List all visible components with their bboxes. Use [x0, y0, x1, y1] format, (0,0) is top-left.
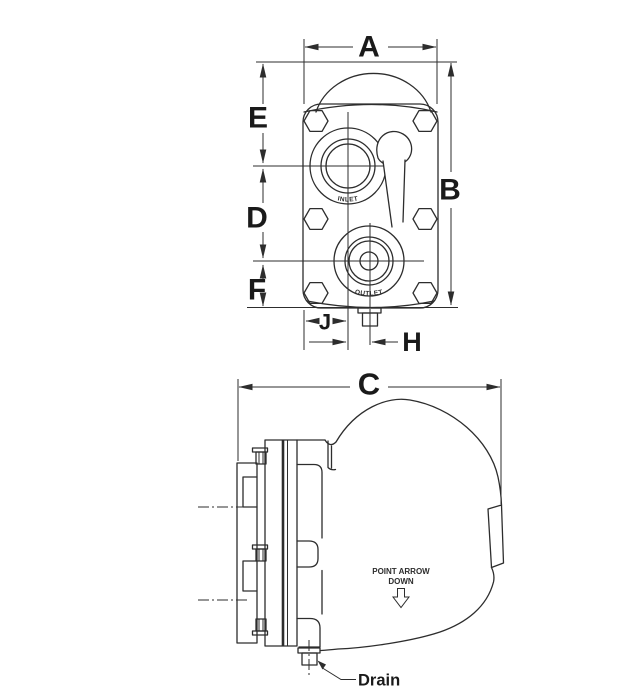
flange-step-lower [243, 561, 257, 591]
hollow-down-arrow-icon [393, 589, 409, 608]
body-dome-profile [325, 399, 502, 505]
outlet-label: OUTLET [354, 289, 384, 298]
dim-j-label: J [319, 310, 331, 335]
dome-cap [316, 73, 431, 112]
inlet-label: INLET [337, 195, 359, 203]
hex-bolt [413, 283, 437, 304]
dim-b-label: B [439, 174, 461, 207]
body-top-crown [304, 105, 437, 113]
point-arrow-note-line1: POINT ARROW [372, 567, 430, 576]
drain-leader-line [323, 668, 357, 680]
point-arrow-note-line2: DOWN [388, 577, 414, 586]
linkage-arm-fill [383, 161, 405, 227]
side-view: C [198, 367, 504, 690]
technical-drawing: A B E D F J H INLET OUTLET [0, 0, 640, 697]
dim-a-label: A [358, 31, 380, 64]
dim-e-label: E [248, 102, 268, 135]
drain-arrowhead [318, 661, 327, 670]
dim-c-label: C [358, 367, 380, 402]
neck-lug-middle [297, 541, 318, 567]
hex-bolt [413, 209, 437, 230]
pipe-flange-side [237, 463, 257, 643]
linkage-boss [377, 131, 412, 165]
hex-bolt [413, 111, 437, 132]
flange-step-upper [243, 477, 257, 507]
hex-bolt [304, 283, 328, 304]
body-right-tab [488, 505, 504, 568]
neck-front-upper [297, 465, 322, 539]
hex-bolt [304, 209, 328, 230]
front-view: A B E D F J H INLET OUTLET [246, 31, 461, 358]
dim-f-label: F [248, 274, 266, 307]
dim-d-label: D [246, 202, 268, 235]
drain-label: Drain [358, 672, 400, 690]
dim-h-label: H [402, 327, 422, 357]
hex-bolt [304, 111, 328, 132]
cover-plate-side [265, 440, 297, 646]
drawing-canvas: A B E D F J H INLET OUTLET [0, 0, 640, 697]
